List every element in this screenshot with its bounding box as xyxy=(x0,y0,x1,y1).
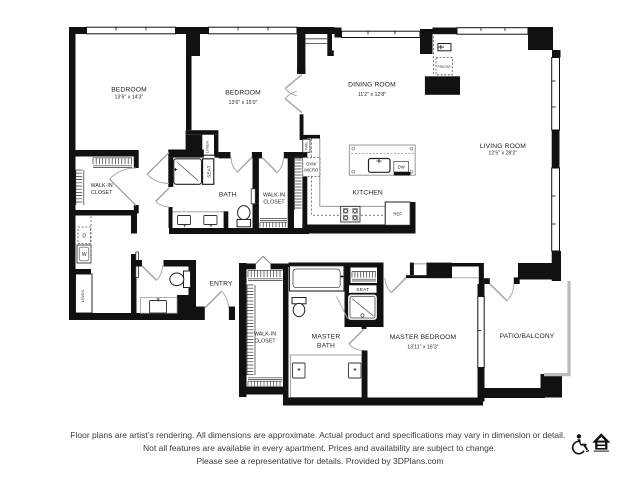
svg-text:D: D xyxy=(82,233,86,239)
svg-text:ENTRY: ENTRY xyxy=(209,280,233,287)
svg-text:CLOSET: CLOSET xyxy=(91,190,113,196)
svg-text:WALK-IN: WALK-IN xyxy=(91,183,113,189)
svg-text:LINEN: LINEN xyxy=(80,290,85,303)
svg-text:W: W xyxy=(82,252,87,258)
svg-text:12′5″ x 28′2″: 12′5″ x 28′2″ xyxy=(489,151,518,157)
svg-text:OVN/: OVN/ xyxy=(306,161,317,166)
svg-text:BATH: BATH xyxy=(317,343,335,350)
svg-text:BEDROOM: BEDROOM xyxy=(111,87,147,94)
svg-text:LIVING ROOM: LIVING ROOM xyxy=(480,143,527,150)
svg-text:DW: DW xyxy=(398,165,405,170)
svg-text:BEDROOM: BEDROOM xyxy=(225,90,261,97)
svg-text:MASTER: MASTER xyxy=(312,333,341,340)
svg-text:DINING ROOM: DINING ROOM xyxy=(348,81,396,88)
svg-text:LINEN: LINEN xyxy=(205,141,210,154)
svg-text:13′6″ x 14′3″: 13′6″ x 14′3″ xyxy=(115,94,144,100)
svg-text:MASTER BEDROOM: MASTER BEDROOM xyxy=(390,334,457,341)
svg-text:BATH: BATH xyxy=(219,192,237,199)
svg-text:MICRO: MICRO xyxy=(304,167,319,172)
svg-text:11′2″ x 12′8″: 11′2″ x 12′8″ xyxy=(358,92,386,98)
svg-text:WALK-IN: WALK-IN xyxy=(254,332,276,338)
svg-text:13′11″ x 16′3″: 13′11″ x 16′3″ xyxy=(407,345,438,351)
svg-text:FRIDGE: FRIDGE xyxy=(437,65,451,69)
svg-text:PATIO/BALCONY: PATIO/BALCONY xyxy=(500,333,555,340)
svg-text:Please see a representative fo: Please see a representative for details.… xyxy=(196,456,443,466)
svg-text:CLOSET: CLOSET xyxy=(263,199,285,205)
svg-text:SEAT: SEAT xyxy=(206,165,211,177)
svg-text:SEAT: SEAT xyxy=(356,287,369,293)
svg-text:Not all features are available: Not all features are available in every … xyxy=(143,443,496,453)
svg-text:FAN: FAN xyxy=(305,142,309,150)
svg-text:KITCHEN: KITCHEN xyxy=(352,190,382,197)
svg-text:13′6″ x 15′0″: 13′6″ x 15′0″ xyxy=(229,100,258,106)
svg-text:REF: REF xyxy=(393,212,402,217)
svg-text:WALK-IN: WALK-IN xyxy=(263,192,285,198)
svg-text:Floor plans are artist’s rende: Floor plans are artist’s rendering. All … xyxy=(70,430,565,440)
svg-text:CLOSET: CLOSET xyxy=(254,339,276,345)
